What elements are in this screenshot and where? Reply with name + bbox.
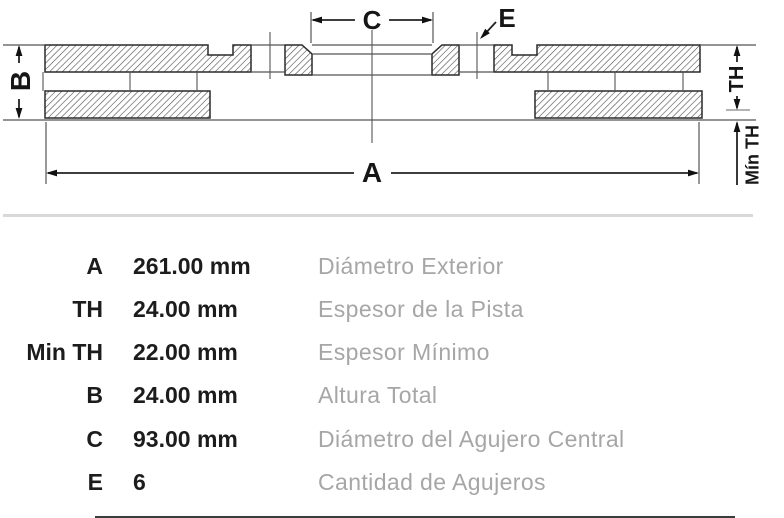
spec-row-c: C 93.00 mm Diámetro del Agujero Central	[0, 425, 784, 453]
section-divider	[3, 214, 753, 217]
dim-label-c: C	[363, 5, 382, 35]
spec-value: 24.00 mm	[133, 381, 238, 409]
spec-desc: Espesor Mínimo	[318, 338, 490, 366]
spec-desc: Diámetro del Agujero Central	[318, 425, 625, 453]
hub-wall-left	[285, 45, 312, 75]
spec-key: A	[0, 252, 103, 280]
spec-key: C	[0, 425, 103, 453]
spec-value: 93.00 mm	[133, 425, 238, 453]
spec-key: Min TH	[0, 338, 103, 366]
spec-row-th: TH 24.00 mm Espesor de la Pista	[0, 295, 784, 323]
spec-desc: Cantidad de Agujeros	[318, 468, 546, 496]
top-right-plate	[494, 45, 700, 72]
dim-label-a: A	[362, 157, 382, 188]
spec-desc: Altura Total	[318, 381, 437, 409]
spec-row-b: B 24.00 mm Altura Total	[0, 381, 784, 409]
disc-cross-section-svg: C E A B TH Mín TH	[0, 0, 784, 215]
bottom-left-plate	[45, 91, 210, 118]
spec-key: B	[0, 381, 103, 409]
technical-drawing: C E A B TH Mín TH	[0, 0, 784, 215]
hatched-sections	[45, 45, 702, 118]
spec-value: 22.00 mm	[133, 338, 238, 366]
spec-desc: Espesor de la Pista	[318, 295, 524, 323]
spec-value: 6	[133, 468, 146, 496]
spec-desc: Diámetro Exterior	[318, 252, 504, 280]
spec-key: TH	[0, 295, 103, 323]
spec-key: E	[0, 468, 103, 496]
spec-row-a: A 261.00 mm Diámetro Exterior	[0, 252, 784, 280]
top-left-plate	[45, 45, 251, 72]
hub-wall-right	[432, 45, 459, 75]
spec-row-e: E 6 Cantidad de Agujeros	[0, 468, 784, 496]
dim-label-e: E	[498, 3, 515, 33]
spec-row-min-th: Min TH 22.00 mm Espesor Mínimo	[0, 338, 784, 366]
brake-disc-spec-sheet: C E A B TH Mín TH A 261.00 mm Diámetro E…	[0, 0, 784, 518]
spec-table: A 261.00 mm Diámetro Exterior TH 24.00 m…	[0, 232, 784, 502]
spec-value: 24.00 mm	[133, 295, 238, 323]
dim-label-min-th: Mín TH	[742, 125, 762, 185]
dim-label-th: TH	[726, 66, 748, 93]
spec-value: 261.00 mm	[133, 252, 251, 280]
dim-label-b: B	[5, 71, 36, 91]
bottom-right-plate	[535, 91, 702, 118]
